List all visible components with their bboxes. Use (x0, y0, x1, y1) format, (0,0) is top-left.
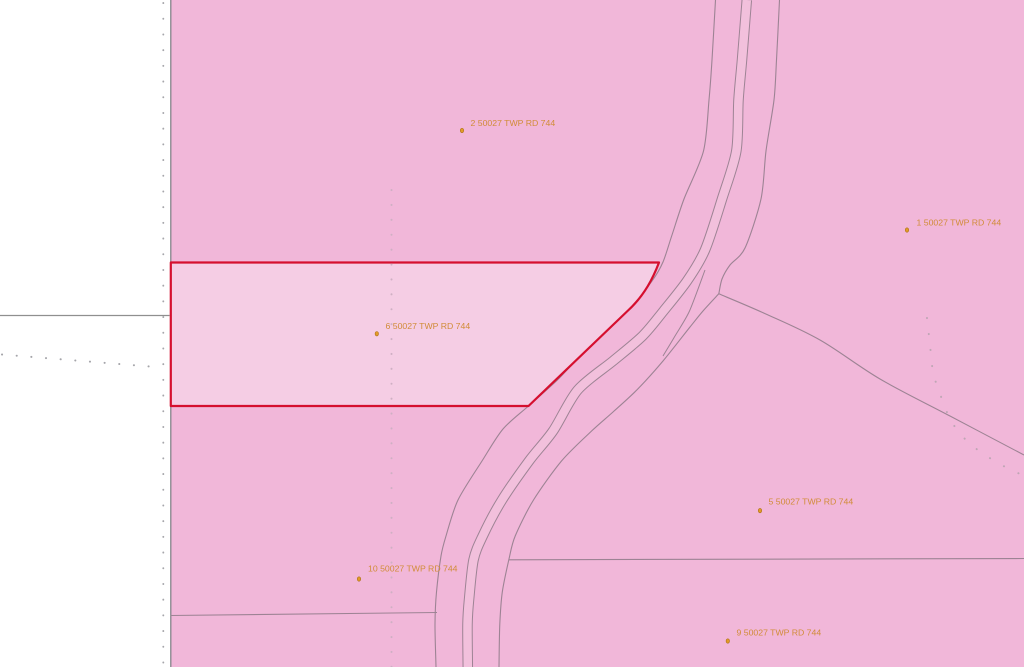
svg-text:2 50027 TWP RD 744: 2 50027 TWP RD 744 (471, 118, 556, 128)
svg-text:1 50027 TWP RD 744: 1 50027 TWP RD 744 (917, 218, 1002, 228)
svg-text:10 50027 TWP RD 744: 10 50027 TWP RD 744 (368, 564, 458, 574)
svg-text:9 50027 TWP RD 744: 9 50027 TWP RD 744 (737, 628, 822, 638)
svg-text:5 50027 TWP RD 744: 5 50027 TWP RD 744 (769, 497, 854, 507)
svg-text:6 50027 TWP RD 744: 6 50027 TWP RD 744 (386, 321, 471, 331)
